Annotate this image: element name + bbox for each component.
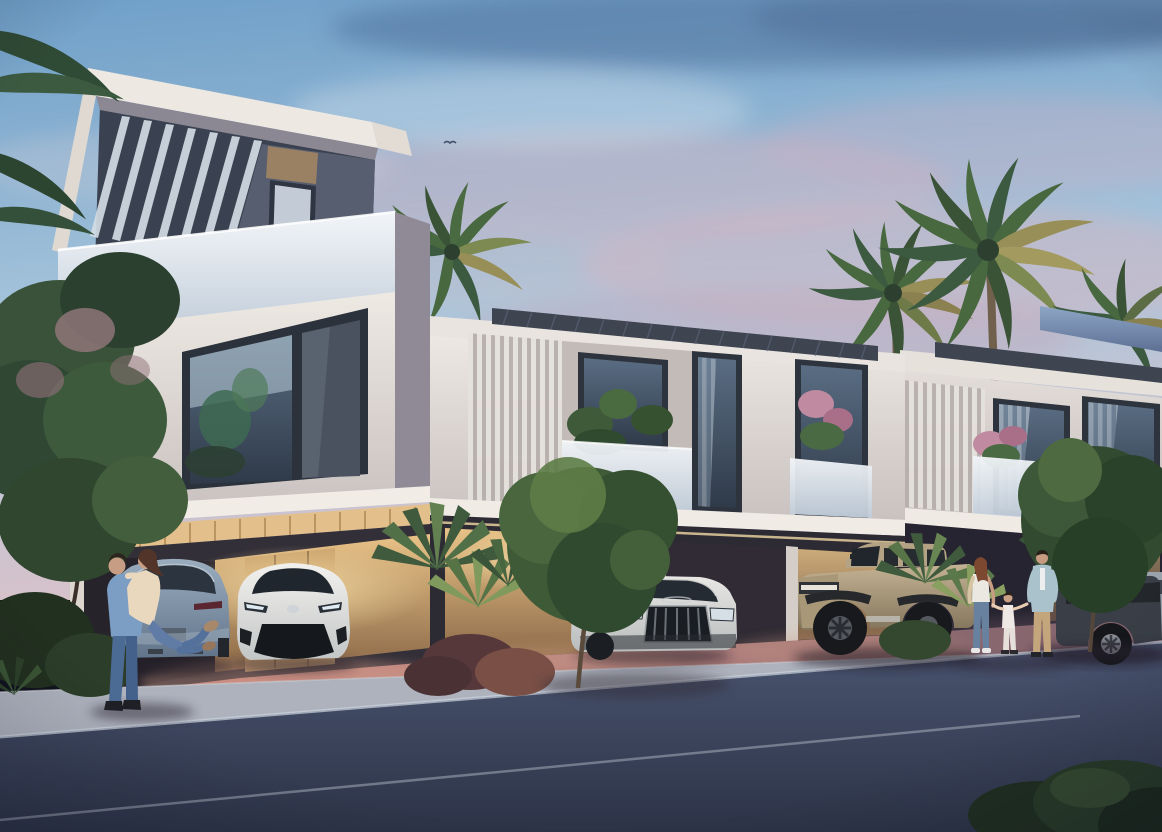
rendering-canvas [0,0,1162,832]
vignette [0,0,1162,832]
townhouse-rendering: Dusk 3D rendering of a modern white town… [0,0,1162,832]
